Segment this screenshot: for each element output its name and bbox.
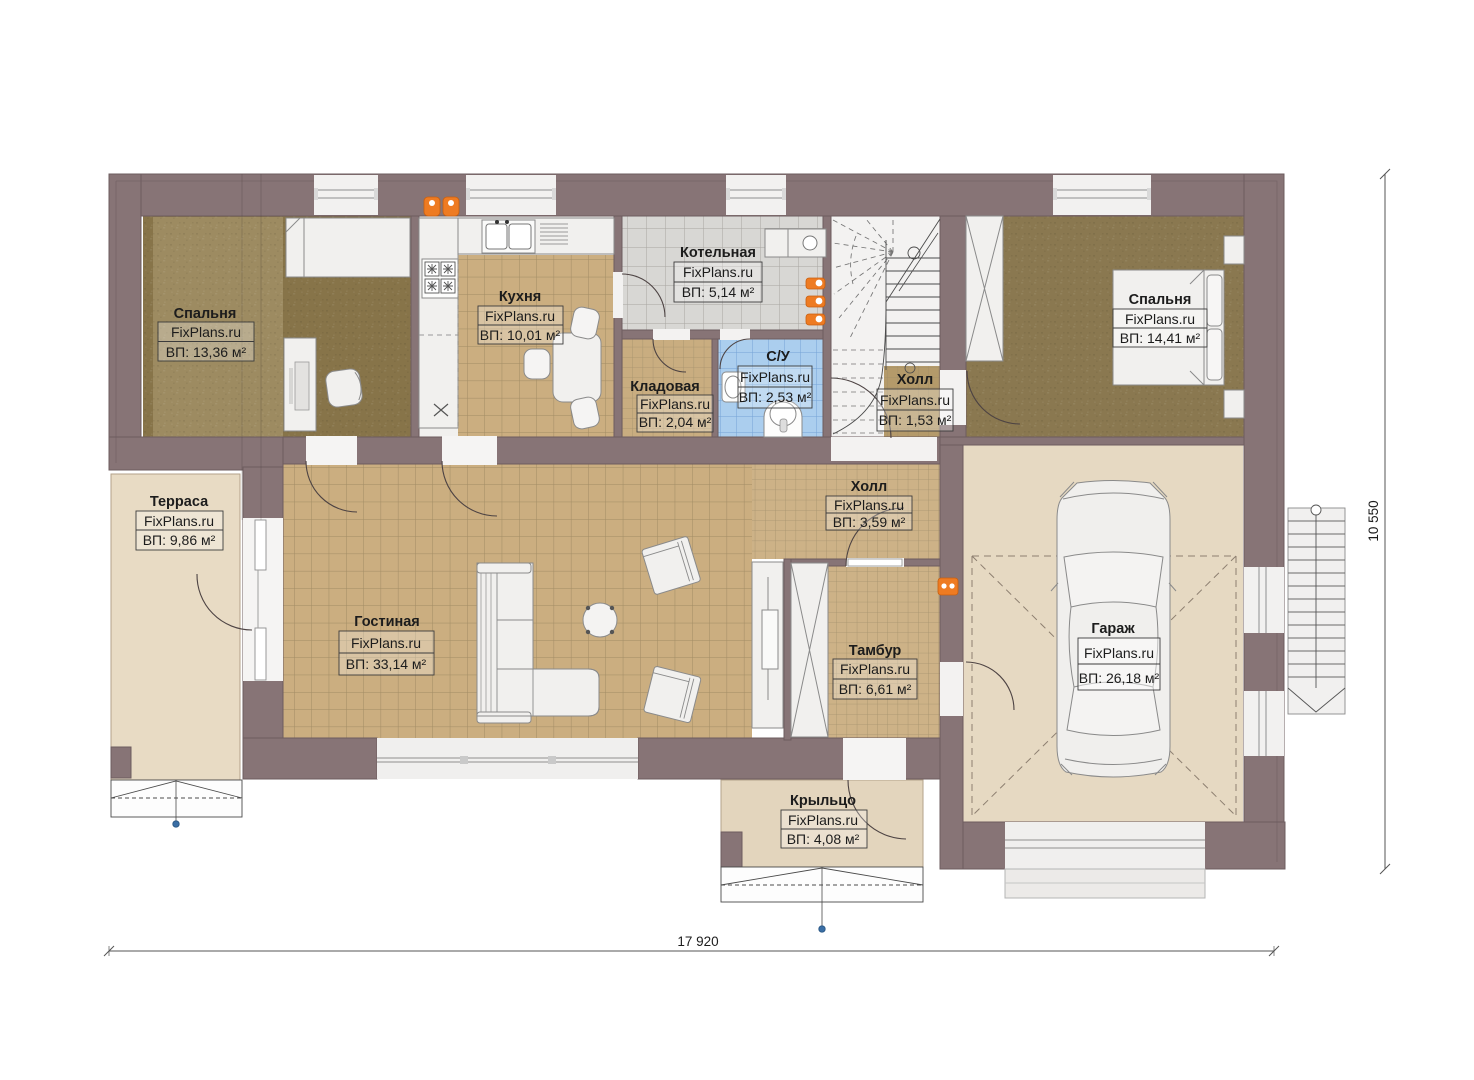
svg-text:С/У: С/У xyxy=(766,349,791,365)
svg-text:Кладовая: Кладовая xyxy=(630,379,699,395)
svg-text:ВП: 2,04 м²: ВП: 2,04 м² xyxy=(639,414,712,430)
svg-text:FixPlans.ru: FixPlans.ru xyxy=(788,812,858,828)
svg-text:FixPlans.ru: FixPlans.ru xyxy=(740,369,810,385)
svg-text:Гараж: Гараж xyxy=(1091,621,1135,637)
svg-text:ВП: 6,61 м²: ВП: 6,61 м² xyxy=(839,681,912,697)
svg-text:ВП: 4,08 м²: ВП: 4,08 м² xyxy=(787,831,860,847)
svg-text:FixPlans.ru: FixPlans.ru xyxy=(640,396,710,412)
svg-text:ВП: 5,14 м²: ВП: 5,14 м² xyxy=(682,284,755,300)
svg-text:Тамбур: Тамбур xyxy=(849,643,902,659)
svg-text:Котельная: Котельная xyxy=(680,245,756,261)
svg-text:FixPlans.ru: FixPlans.ru xyxy=(351,635,421,651)
svg-text:ВП: 9,86 м²: ВП: 9,86 м² xyxy=(143,532,216,548)
svg-text:Спальня: Спальня xyxy=(1129,292,1192,308)
svg-text:FixPlans.ru: FixPlans.ru xyxy=(880,392,950,408)
svg-text:Холл: Холл xyxy=(897,372,933,388)
svg-text:ВП: 14,41 м²: ВП: 14,41 м² xyxy=(1120,330,1201,346)
svg-text:FixPlans.ru: FixPlans.ru xyxy=(144,513,214,529)
svg-text:ВП: 10,01 м²: ВП: 10,01 м² xyxy=(480,327,561,343)
svg-text:FixPlans.ru: FixPlans.ru xyxy=(1084,645,1154,661)
svg-text:17 920: 17 920 xyxy=(677,934,718,949)
svg-text:ВП: 33,14 м²: ВП: 33,14 м² xyxy=(346,656,427,672)
svg-text:10 550: 10 550 xyxy=(1366,500,1381,541)
svg-text:FixPlans.ru: FixPlans.ru xyxy=(683,264,753,280)
svg-text:Кухня: Кухня xyxy=(499,289,541,305)
svg-text:Терраса: Терраса xyxy=(150,494,209,510)
svg-text:FixPlans.ru: FixPlans.ru xyxy=(840,661,910,677)
svg-text:ВП: 13,36 м²: ВП: 13,36 м² xyxy=(166,344,247,360)
svg-text:Крыльцо: Крыльцо xyxy=(790,793,856,809)
svg-text:ВП: 1,53 м²: ВП: 1,53 м² xyxy=(879,412,952,428)
svg-text:FixPlans.ru: FixPlans.ru xyxy=(834,497,904,513)
svg-text:FixPlans.ru: FixPlans.ru xyxy=(171,324,241,340)
svg-text:Холл: Холл xyxy=(851,479,887,495)
svg-text:FixPlans.ru: FixPlans.ru xyxy=(485,308,555,324)
svg-text:ВП: 3,59 м²: ВП: 3,59 м² xyxy=(833,514,906,530)
svg-text:ВП: 26,18 м²: ВП: 26,18 м² xyxy=(1079,670,1160,686)
svg-text:Спальня: Спальня xyxy=(174,306,237,322)
svg-text:FixPlans.ru: FixPlans.ru xyxy=(1125,311,1195,327)
svg-text:ВП: 2,53 м²: ВП: 2,53 м² xyxy=(739,389,812,405)
svg-text:Гостиная: Гостиная xyxy=(354,614,420,630)
